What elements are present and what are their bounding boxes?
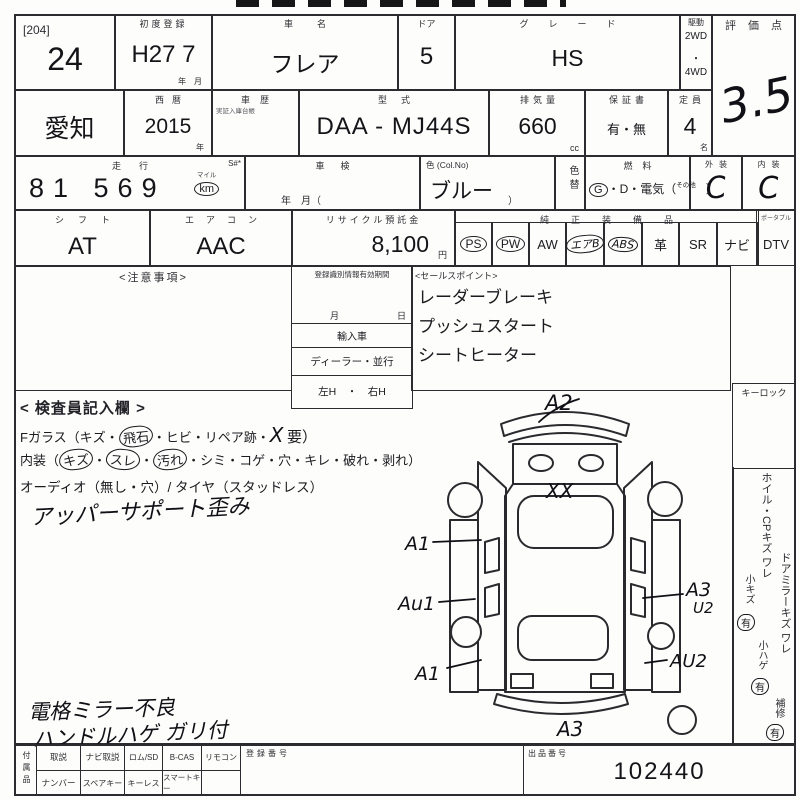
registration-info-box: 登録識別情報有効期間 月 日 輸入車 ディーラー・並行 左H ・ 右H bbox=[291, 266, 413, 409]
equip-pw-cell: PW bbox=[491, 222, 530, 266]
equip-abs-cell: ABS bbox=[603, 222, 643, 266]
displacement-unit: cc bbox=[570, 143, 579, 153]
model-code-cell: 型式 DAA - MJ44S bbox=[299, 90, 489, 156]
shaken-cell: 車検 年 月（ bbox=[244, 156, 421, 210]
year-unit: 年 bbox=[196, 142, 204, 153]
wheel-small-scratch-label: 小キズ bbox=[741, 574, 756, 604]
annot-a3-bottom: A3 bbox=[555, 717, 583, 741]
history-cell: 車歴 実証入庫台帳 bbox=[211, 90, 299, 156]
annot-au2: AU2 bbox=[669, 651, 707, 672]
car-name-cell: 車名 フレア bbox=[211, 14, 399, 90]
fuel-gasoline-circled: G bbox=[589, 183, 608, 197]
exterior-grade-value: C bbox=[688, 168, 743, 208]
wheel-yes: 有 bbox=[737, 614, 755, 631]
exhibit-number-value: 102440 bbox=[523, 758, 796, 786]
shaken-label: 車検 bbox=[245, 159, 420, 172]
notes-title: <注意事項> bbox=[15, 269, 292, 285]
warranty-cell: 保証書 有・無 bbox=[584, 90, 669, 156]
a1-rear-leader bbox=[447, 660, 481, 668]
recycle-deposit-cell: リサイクル預託金 8,100 円 bbox=[291, 210, 456, 266]
grade-value: HS bbox=[455, 45, 680, 72]
model-code-label: 型式 bbox=[300, 93, 488, 106]
equip-dtv-cell: ポータブル DTV bbox=[756, 210, 796, 266]
equip-airbag-cell: エアB bbox=[565, 222, 605, 266]
notes-box: <注意事項> bbox=[14, 266, 293, 391]
drive-option-4wd: 4WD bbox=[680, 67, 712, 78]
mileage-unit-mile: マイル bbox=[194, 169, 219, 179]
equip-leather: 革 bbox=[654, 235, 667, 254]
color-label: 色 (Col.No) bbox=[426, 159, 469, 171]
color-cell: 色 (Col.No) ブルー ） bbox=[419, 156, 556, 210]
equip-ps-cell: PS bbox=[454, 222, 493, 266]
capacity-value: 4 bbox=[668, 113, 712, 140]
glass-text-a: Fガラス（キズ・ bbox=[20, 430, 119, 445]
lot-number: 24 bbox=[15, 41, 115, 78]
equip-navi: ナビ bbox=[724, 235, 750, 254]
car-rear-bumper bbox=[494, 694, 628, 714]
mileage-unit-km: km bbox=[194, 182, 219, 196]
interior-grade-label: 内装 bbox=[742, 159, 795, 170]
equip-navi-cell: ナビ bbox=[716, 222, 758, 266]
lot-tag: [204] bbox=[23, 23, 50, 37]
equip-pw: PW bbox=[496, 236, 525, 252]
repair-yes: 有 bbox=[766, 724, 784, 741]
interior-text-a: 内装（ bbox=[20, 453, 59, 468]
grade-label: グレード bbox=[455, 17, 680, 30]
fuel-cell: 燃料 G・D・電気（その他） bbox=[584, 156, 691, 210]
wheel-yes-circled: 有 bbox=[737, 614, 755, 632]
accessories-side-label: 付属品 bbox=[21, 751, 32, 787]
equip-leather-cell: 革 bbox=[641, 222, 680, 266]
score-cell: 評価点 3.5 bbox=[711, 14, 796, 156]
shift-value: AT bbox=[15, 233, 150, 261]
door-value: 5 bbox=[398, 43, 455, 71]
interior-sep-1: ・ bbox=[93, 453, 106, 468]
aircon-cell: エアコン AAC bbox=[149, 210, 293, 266]
equip-dtv: DTV bbox=[757, 237, 795, 252]
registration-number-label: 登録番号 bbox=[246, 748, 290, 759]
registration-info-title: 登録識別情報有効期間 bbox=[292, 269, 412, 280]
car-name-value: フレア bbox=[212, 45, 398, 79]
a3-right-leader bbox=[643, 594, 683, 598]
sales-points-box: <セールスポイント> レーダーブレーキ プッシュスタート シートヒーター bbox=[411, 266, 731, 391]
annot-au1: Au1 bbox=[396, 593, 435, 615]
annot-a1-front: A1 bbox=[403, 533, 430, 555]
drive-type-label: 駆動 bbox=[680, 17, 712, 28]
mirror-small-label: 小ハゲ bbox=[754, 640, 769, 670]
drive-type-cell: 駆動 2WD ・ 4WD bbox=[679, 14, 713, 90]
annot-u2-right: U2 bbox=[693, 599, 714, 617]
annot-xx: XX bbox=[545, 479, 575, 503]
prefecture-cell: 愛知 bbox=[14, 90, 125, 156]
equip-aw: AW bbox=[537, 237, 557, 252]
equip-sr-cell: SR bbox=[678, 222, 718, 266]
a1-front-leader bbox=[433, 540, 481, 542]
recycle-deposit-label: リサイクル預託金 bbox=[292, 213, 455, 226]
mirror-yes: 有 bbox=[751, 678, 769, 695]
inspector-interior-line: 内装（キズ・スレ・汚れ・シミ・コゲ・穴・キレ・破れ・剥れ） bbox=[20, 449, 421, 470]
accessory-spare-key: スペアキー bbox=[81, 772, 124, 794]
accessory-rom-sd: ロム/SD bbox=[125, 746, 162, 768]
keylock-label: キーロック bbox=[733, 386, 795, 399]
displacement-value: 660 bbox=[490, 113, 585, 140]
sales-point-1: レーダーブレーキ bbox=[418, 283, 553, 308]
shift-label: シフト bbox=[15, 213, 150, 226]
sales-point-2: プッシュスタート bbox=[418, 312, 554, 337]
stamp-circle bbox=[668, 706, 696, 734]
interior-grade-cell: 内装 C bbox=[741, 156, 796, 210]
accessory-manual: 取説 bbox=[37, 746, 80, 768]
repair-label: 補修 bbox=[771, 698, 786, 718]
divider-line bbox=[292, 323, 412, 324]
accessory-navi-manual: ナビ取説 bbox=[81, 746, 124, 768]
fuel-label: 燃料 bbox=[585, 159, 690, 172]
glass-text-b: ・ヒビ・リペア跡・ bbox=[153, 430, 270, 445]
glass-x-mark: X bbox=[270, 423, 284, 447]
history-note: 実証入庫台帳 bbox=[216, 105, 255, 115]
interior-dirt-circled: 汚れ bbox=[152, 448, 187, 471]
model-code-value: DAA - MJ44S bbox=[300, 113, 488, 141]
year-label: 西暦 bbox=[124, 93, 212, 106]
warranty-value: 有・無 bbox=[585, 119, 668, 138]
sales-points-title: <セールスポイント> bbox=[415, 269, 498, 282]
car-left-mirror bbox=[448, 483, 482, 517]
color-change-label: 色替 bbox=[565, 165, 580, 193]
au2-leader bbox=[645, 660, 667, 663]
car-left-rear-wheel bbox=[451, 617, 481, 647]
annot-a1-rear: A1 bbox=[413, 663, 440, 685]
registration-day-label: 日 bbox=[397, 309, 406, 322]
drive-option-dot: ・ bbox=[680, 50, 712, 65]
car-right-rear-wheel bbox=[648, 623, 674, 649]
registration-month-label: 月 bbox=[330, 309, 339, 322]
color-value: ブルー bbox=[430, 175, 493, 205]
shift-cell: シフト AT bbox=[14, 210, 151, 266]
equip-airbag-circled: エアB bbox=[566, 233, 605, 254]
import-car-label: 輸入車 bbox=[292, 328, 412, 343]
interior-sep-2: ・ bbox=[140, 453, 153, 468]
year-cell: 西暦 2015 年 bbox=[123, 90, 213, 156]
annot-a3-right: A3 bbox=[684, 579, 711, 601]
mileage-unit-group: マイル km bbox=[194, 169, 219, 197]
equip-ps: PS bbox=[460, 236, 486, 252]
drive-option-2wd: 2WD bbox=[680, 31, 712, 42]
grade-cell: グレード HS bbox=[454, 14, 681, 90]
right-column-divider bbox=[732, 467, 734, 745]
first-registration-value: H27 7 bbox=[115, 41, 212, 69]
divider-line bbox=[292, 375, 412, 376]
car-right-mirror bbox=[648, 482, 682, 516]
car-body bbox=[505, 484, 625, 692]
au1-leader bbox=[439, 599, 475, 602]
car-name-label: 車名 bbox=[212, 17, 398, 30]
door-label: ドア bbox=[398, 17, 455, 30]
color-change-cell: 色替 bbox=[554, 156, 586, 210]
equip-aw-cell: AW bbox=[528, 222, 567, 266]
first-registration-unit: 年 月 bbox=[178, 76, 202, 87]
divider-line bbox=[292, 347, 412, 348]
inspector-glass-line: Fガラス（キズ・飛石・ヒビ・リペア跡・X 要） bbox=[20, 423, 317, 447]
annot-a2: A2 bbox=[543, 391, 573, 415]
recycle-deposit-value: 8,100 bbox=[371, 231, 429, 258]
capacity-unit: 名 bbox=[700, 142, 708, 153]
car-front-bumper bbox=[501, 412, 629, 442]
interior-scratch-circled: キズ bbox=[58, 448, 94, 472]
glass-flying-stone-circled: 飛石 bbox=[118, 424, 154, 448]
auction-inspection-sheet: [204] 24 初度登録 H27 7 年 月 車名 フレア ドア 5 グレード… bbox=[0, 0, 800, 800]
capacity-label: 定員 bbox=[668, 93, 712, 106]
accessory-smart-key: スマートキー bbox=[163, 772, 201, 794]
glass-text-d: 要） bbox=[287, 429, 317, 446]
cropped-title-marks bbox=[236, 0, 566, 7]
color-number-paren: ） bbox=[508, 192, 518, 207]
sales-point-3: シートヒーター bbox=[418, 341, 537, 366]
prefecture-value: 愛知 bbox=[15, 109, 124, 145]
interior-wear-circled: スレ bbox=[105, 448, 141, 472]
score-value: 3.5 bbox=[715, 66, 798, 134]
dealer-parallel-label: ディーラー・並行 bbox=[292, 354, 412, 369]
car-hood bbox=[513, 444, 617, 484]
interior-grade-value: C bbox=[741, 169, 796, 208]
mileage-value: 81 569 bbox=[29, 173, 166, 204]
equip-sr: SR bbox=[689, 237, 707, 252]
exterior-grade-cell: 外装 C bbox=[689, 156, 743, 210]
accessory-bcas: B-CAS bbox=[163, 746, 201, 768]
mileage-cell: 走行 S#* 81 569 マイル km bbox=[14, 156, 246, 210]
car-damage-diagram: A2 XX A1 Au1 A1 A3 A3 U2 AU2 bbox=[393, 392, 725, 744]
lot-cell: [204] 24 bbox=[14, 14, 116, 90]
mileage-s-mark: S#* bbox=[228, 159, 241, 168]
displacement-label: 排気量 bbox=[490, 93, 585, 106]
warranty-label: 保証書 bbox=[585, 93, 668, 106]
equip-abs-circled: ABS bbox=[607, 235, 638, 252]
year-value: 2015 bbox=[124, 115, 212, 139]
aircon-label: エアコン bbox=[150, 213, 292, 226]
aircon-value: AAC bbox=[150, 233, 292, 261]
interior-text-b: ・シミ・コゲ・穴・キレ・破れ・剥れ） bbox=[187, 453, 421, 468]
accessory-keyless: キーレス bbox=[125, 772, 162, 794]
divider-line bbox=[240, 744, 241, 796]
accessory-number-plate: ナンバー bbox=[37, 772, 80, 794]
door-cell: ドア 5 bbox=[397, 14, 456, 90]
wheel-damage-label: ホイル・CPキズ ワレ bbox=[758, 472, 774, 652]
capacity-cell: 定員 4 名 bbox=[667, 90, 713, 156]
accessory-remote: リモコン bbox=[202, 746, 240, 768]
shaken-note: 年 月（ bbox=[281, 192, 321, 207]
keylock-box: キーロック bbox=[732, 383, 796, 469]
first-registration-cell: 初度登録 H27 7 年 月 bbox=[114, 14, 213, 90]
equip-dtv-header: ポータブル bbox=[757, 213, 795, 222]
fuel-options: ・D・電気（ bbox=[608, 182, 677, 196]
mirror-yes-circled: 有 bbox=[751, 678, 769, 696]
repair-yes-circled: 有 bbox=[766, 724, 784, 742]
inspector-title: < 検査員記入欄 > bbox=[20, 397, 146, 418]
displacement-cell: 排気量 660 cc bbox=[489, 90, 586, 156]
mirror-damage-label: ドアミラーキズ ワレ bbox=[777, 552, 793, 722]
recycle-deposit-unit: 円 bbox=[438, 248, 447, 261]
first-registration-label: 初度登録 bbox=[115, 17, 212, 30]
score-label: 評価点 bbox=[712, 17, 795, 33]
